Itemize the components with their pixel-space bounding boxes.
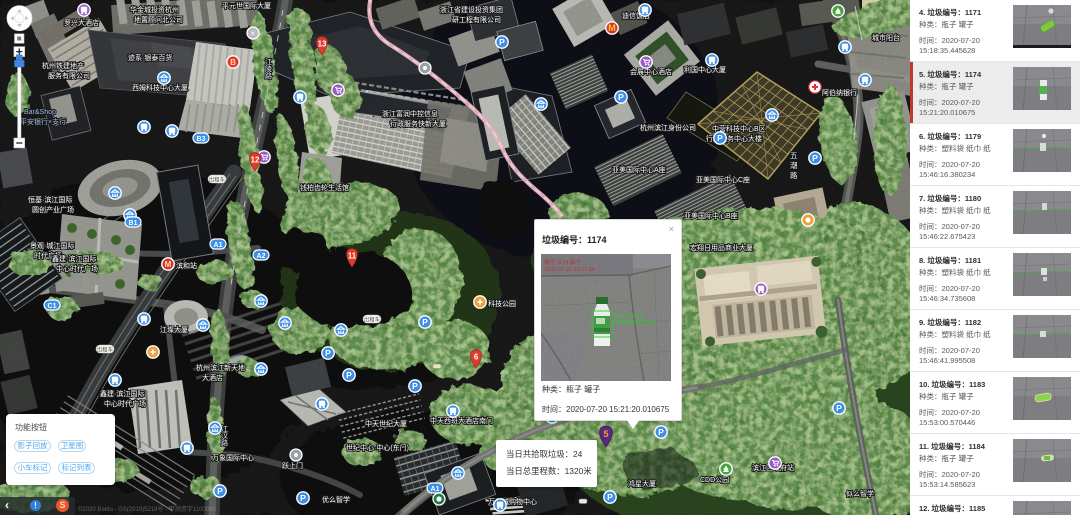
svg-text:出租车: 出租车 [364,315,381,323]
svg-text:路: 路 [790,170,798,180]
svg-text:B1: B1 [129,220,138,227]
svg-text:西姆科技中心大厦: 西姆科技中心大厦 [132,83,188,92]
svg-text:浙江富润中控信息: 浙江富润中控信息 [382,109,438,118]
svg-text:出租车: 出租车 [97,345,114,353]
svg-text:罗兴大酒店: 罗兴大酒店 [64,18,99,27]
svg-text:研工程有限公司: 研工程有限公司 [452,15,501,24]
svg-text:中心时代广场: 中心时代广场 [104,399,146,408]
svg-text:五: 五 [790,151,798,160]
svg-text:滨和站: 滨和站 [176,261,197,270]
svg-text:×: × [251,29,256,38]
svg-text:钱柏齿轮生活馆: 钱柏齿轮生活馆 [300,183,349,192]
svg-text:A1: A1 [431,486,440,493]
svg-text:编号:1174 瓶子: 编号:1174 瓶子 [544,258,581,266]
svg-text:江陵路: 江陵路 [265,58,273,80]
svg-text:中天世纪大厦: 中天世纪大厦 [365,419,407,428]
svg-text:万象国际中心: 万象国际中心 [212,453,254,462]
svg-text:杭州铁建地产: 杭州铁建地产 [42,61,84,70]
svg-text:12: 12 [251,156,260,165]
svg-text:CDD公园: CDD公园 [700,476,729,484]
svg-text:潮: 潮 [790,160,798,170]
svg-text:圆创产业广场: 圆创产业广场 [32,205,74,214]
svg-text:平元世国际大厦: 平元世国际大厦 [222,1,271,10]
svg-text:A2: A2 [257,253,266,260]
svg-text:宏翔日用品商业大厦: 宏翔日用品商业大厦 [690,243,753,252]
svg-text:行政服务快新大厦: 行政服务快新大厦 [390,119,446,128]
svg-text:似么智学: 似么智学 [846,489,874,498]
svg-text:亚美国际中心C座: 亚美国际中心C座 [696,175,750,184]
svg-text:bottle 0.98: bottle 0.98 [613,314,643,320]
svg-text:5: 5 [603,429,608,439]
svg-text:中天西班大酒店南门: 中天西班大酒店南门 [430,416,493,425]
svg-text:出租车: 出租车 [209,175,226,183]
svg-text:2020-07-20 15:21:20: 2020-07-20 15:21:20 [544,267,595,273]
svg-text:华金城投资杭州: 华金城投资杭州 [130,5,179,14]
svg-text:阿伯纳银行: 阿伯纳银行 [822,88,857,97]
svg-text:世纪中心·中心(东门): 世纪中心·中心(东门) [346,443,409,452]
svg-text:恒基·滨江国际: 恒基·滨江国际 [28,195,72,204]
svg-text:鑫建·滨江国际: 鑫建·滨江国际 [52,254,96,263]
svg-text:11: 11 [348,252,357,261]
svg-text:M: M [165,260,172,269]
svg-text:杭州滨江新天地: 杭州滨江新天地 [196,363,245,372]
svg-text:迹系·银泰百货: 迹系·银泰百货 [128,53,172,62]
svg-text:鑫建·滨江国际: 鑫建·滨江国际 [100,389,144,398]
svg-text:会展中心酒店: 会展中心酒店 [630,67,672,76]
svg-text:利国中心大厦: 利国中心大厦 [684,65,726,74]
svg-text:中心时代广场: 中心时代广场 [56,264,98,273]
svg-text:C1: C1 [48,303,57,310]
svg-text:景观·城江国际: 景观·城江国际 [30,241,74,250]
svg-text:亚美国际中心A座: 亚美国际中心A座 [612,165,666,174]
svg-text:浙江省建设投资集团: 浙江省建设投资集团 [440,5,503,14]
svg-text:科技公园: 科技公园 [488,299,516,308]
svg-text:地置顾问北公司: 地置顾问北公司 [134,15,183,24]
svg-text:优么智学: 优么智学 [322,495,350,504]
svg-text:杭州滨江身份公司: 杭州滨江身份公司 [640,123,696,132]
svg-text:大酒店: 大酒店 [202,373,223,382]
svg-text:服务有限公司: 服务有限公司 [48,71,90,80]
svg-text:B3: B3 [197,136,206,143]
svg-text:亚美国际中心B座: 亚美国际中心B座 [684,211,738,220]
svg-text:B: B [230,58,236,67]
svg-text:城市阳台: 城市阳台 [872,33,900,42]
svg-text:A1: A1 [214,242,223,249]
svg-text:跃上门: 跃上门 [282,461,303,470]
svg-text:M: M [608,23,616,33]
svg-text:鸿星大厦: 鸿星大厦 [628,479,656,488]
svg-text:13: 13 [318,40,327,49]
svg-text:江璨大厦: 江璨大厦 [160,325,188,334]
svg-text:6: 6 [474,353,479,362]
